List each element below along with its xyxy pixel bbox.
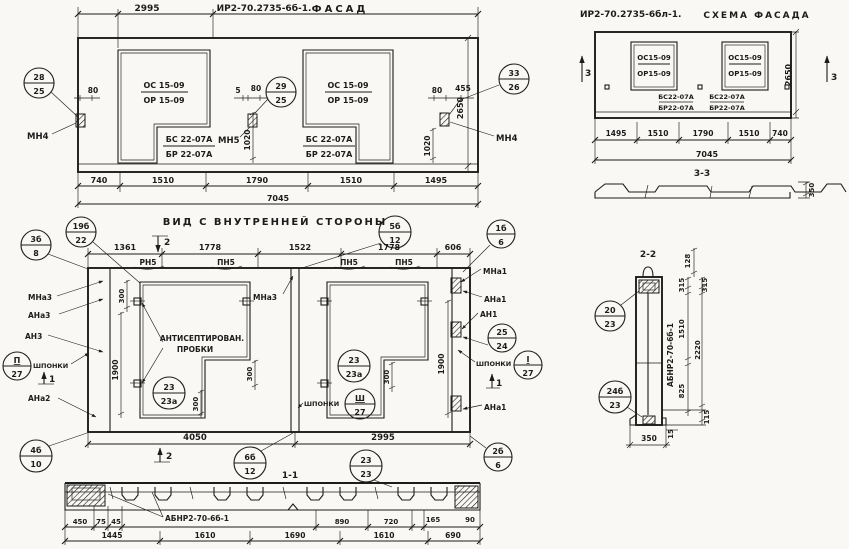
facade-view: 2995 ИР2-70.2735-6б-1. ФАСАД ОС 15-09 ОР… <box>24 3 529 208</box>
anchor-mark-mn5 <box>248 114 257 127</box>
schema-win2-line2: ОР15-09 <box>728 70 762 78</box>
dim-315-b: 315 <box>701 278 709 293</box>
svg-text:23: 23 <box>360 456 371 465</box>
dim-2650-schema: 2650 <box>784 63 793 86</box>
section33-title: 3-3 <box>694 169 710 179</box>
label-pn5-c: ПН5 <box>395 258 413 267</box>
svg-text:6: 6 <box>495 461 501 470</box>
dim-1790: 1790 <box>246 176 269 185</box>
svg-text:25: 25 <box>275 96 287 105</box>
balloon-29-25: 29 25 <box>255 77 296 113</box>
dim-300-top: 300 <box>118 289 126 304</box>
dim-1690: 1690 <box>285 531 306 540</box>
dim-300-a: 300 <box>246 367 254 382</box>
schema-sill2-line1: БС22-07А <box>709 93 745 101</box>
dim-350-sec22: 350 <box>641 434 657 443</box>
section11-label: АБНР2-70-6б-1 <box>165 514 229 523</box>
facade-win2-line1: ОС 15-09 <box>327 81 368 90</box>
svg-text:23: 23 <box>348 356 359 365</box>
svg-text:Ш: Ш <box>355 394 365 403</box>
dim-2220: 2220 <box>694 340 702 360</box>
svg-text:3б: 3б <box>30 234 42 244</box>
svg-text:27: 27 <box>11 370 22 379</box>
balloon-2b-6: 2б 6 <box>470 436 512 471</box>
schema-sill1-line2: БР22-07А <box>658 104 694 112</box>
label-mna1: МНа1 <box>483 267 507 276</box>
schema-subtitle: СХЕМА ФАСАДА <box>703 11 810 21</box>
dim-15: 15 <box>667 429 675 439</box>
svg-text:4б: 4б <box>30 445 42 455</box>
dim-690: 690 <box>445 531 461 540</box>
dim-80-left: 80 <box>88 86 98 95</box>
section-1-1: АБНР2-70-6б-1 450 75 45 890 720 165 90 1… <box>62 483 483 545</box>
svg-text:23а: 23а <box>161 397 178 406</box>
label-pn5-a: ПН5 <box>217 258 235 267</box>
dim-300-b: 300 <box>192 397 200 412</box>
dim-7045-schema: 7045 <box>696 150 719 159</box>
schema-dim-740: 740 <box>772 129 788 138</box>
section22-label: АБНР2-70-6б-1 <box>666 323 675 387</box>
section1-marker-left: 1 <box>49 375 55 385</box>
label-an1: АН1 <box>480 310 497 319</box>
svg-text:33: 33 <box>508 69 519 78</box>
svg-text:28: 28 <box>33 73 45 82</box>
svg-text:6: 6 <box>498 238 504 247</box>
label-ana1-bottom: АНа1 <box>484 403 506 412</box>
section2-marker-bottom: 2 <box>166 452 172 462</box>
note-antiseptic-2: ПРОБКИ <box>177 345 213 354</box>
section3-marker-right: 3 <box>831 73 837 83</box>
dim-165: 165 <box>426 516 441 524</box>
svg-text:26: 26 <box>508 83 520 92</box>
schema-win1-line1: ОС15-09 <box>637 54 671 62</box>
dim-740: 740 <box>91 176 108 185</box>
dim-1020-right: 1020 <box>423 136 432 157</box>
facade-subtitle: ФАСАД <box>312 4 369 15</box>
label-mna3-left: МНа3 <box>28 293 52 302</box>
svg-text:12: 12 <box>389 236 400 245</box>
facade-sill2-line1: БС 22-07А <box>306 135 353 144</box>
facade-win1-line2: ОР 15-09 <box>143 96 184 105</box>
dim-1610a: 1610 <box>195 531 216 540</box>
svg-text:29: 29 <box>275 82 287 91</box>
svg-text:I: I <box>527 355 530 364</box>
section11-title: 1-1 <box>282 471 298 481</box>
svg-text:25: 25 <box>496 328 508 337</box>
label-an3: АН3 <box>25 332 42 341</box>
facade-top-dim: 2995 <box>134 4 159 14</box>
svg-text:П: П <box>14 356 21 365</box>
svg-text:23: 23 <box>609 401 620 410</box>
dim-1510-sec: 1510 <box>678 319 686 339</box>
inner-title: ВИД С ВНУТРЕННЕЙ СТОРОНЫ <box>163 215 388 228</box>
dim-2995-inner: 2995 <box>371 433 395 443</box>
label-shponki-mid: ШПОНКИ <box>304 400 339 408</box>
section-2-2: 2-2 АБНР2-70-6б-1 128 315 315 1510 825 2… <box>595 248 711 448</box>
anchor-mark-mn4-right <box>440 113 449 126</box>
schema-dim-1790: 1790 <box>693 129 714 138</box>
dim-455: 455 <box>455 84 471 93</box>
balloon-III-27: Ш 27 <box>345 389 375 419</box>
dim-450: 450 <box>73 518 88 526</box>
dim-1510b: 1510 <box>340 176 363 185</box>
schema-win2-line1: ОС15-09 <box>728 54 762 62</box>
balloon-20-23: 20 23 <box>595 291 639 331</box>
facade-sill2-line2: БР 22-07А <box>306 150 353 159</box>
label-mn5: МН5 <box>218 136 240 146</box>
label-shponki-right: ШПОНКИ <box>476 360 511 368</box>
dim-4050: 4050 <box>183 433 207 443</box>
facade-win1-line1: ОС 15-09 <box>143 81 184 90</box>
section22-title: 2-2 <box>640 250 656 260</box>
svg-text:23а: 23а <box>346 370 363 379</box>
schema-dim-1510a: 1510 <box>648 129 669 138</box>
svg-text:1б: 1б <box>495 223 507 233</box>
dim-90: 90 <box>465 516 475 524</box>
balloon-23-23a-left: 23 23а <box>153 377 185 409</box>
schema-title: ИР2-70.2735-6бл-1. <box>580 9 681 20</box>
svg-text:24: 24 <box>496 342 508 351</box>
dim-80-right: 80 <box>432 86 442 95</box>
section3-marker-left: 3 <box>585 69 591 79</box>
svg-text:6б: 6б <box>244 452 256 462</box>
inner-view: ВИД С ВНУТРЕННЕЙ СТОРОНЫ 1361 1778 1522 … <box>3 215 542 487</box>
label-mn4-right: МН4 <box>496 134 518 144</box>
dim-1361: 1361 <box>114 243 137 252</box>
svg-text:23: 23 <box>163 383 174 392</box>
svg-text:22: 22 <box>75 236 86 245</box>
dim-825: 825 <box>678 384 686 399</box>
svg-text:20: 20 <box>604 306 616 315</box>
dim-720: 720 <box>384 518 399 526</box>
balloon-1b-6: 1б 6 <box>463 220 515 272</box>
section2-marker-top: 2 <box>164 238 170 248</box>
facade-win2-line2: ОР 15-09 <box>327 96 368 105</box>
dim-45: 45 <box>111 518 121 526</box>
schema-sill1-line1: БС22-07А <box>658 93 694 101</box>
label-rn5: РН5 <box>140 258 157 267</box>
dim-75: 75 <box>96 518 106 526</box>
svg-text:23: 23 <box>604 320 615 329</box>
dim-1900-left: 1900 <box>111 360 120 381</box>
svg-text:27: 27 <box>354 408 365 417</box>
blueprint-page: 2995 ИР2-70.2735-6б-1. ФАСАД ОС 15-09 ОР… <box>0 0 849 549</box>
schema-win1-line2: ОР15-09 <box>637 70 671 78</box>
balloon-II-27: П 27 <box>3 352 31 380</box>
svg-text:2б: 2б <box>492 446 504 456</box>
facade-sill1-line2: БР 22-07А <box>166 150 213 159</box>
label-ana3: АНа3 <box>28 311 50 320</box>
drawing-canvas: 2995 ИР2-70.2735-6б-1. ФАСАД ОС 15-09 ОР… <box>0 0 849 549</box>
balloon-4b-10: 4б 10 <box>20 433 87 472</box>
svg-text:27: 27 <box>522 369 533 378</box>
facade-title: ИР2-70.2735-6б-1. <box>217 3 312 14</box>
balloon-23-23: 23 23 <box>350 450 392 487</box>
svg-text:12: 12 <box>244 467 255 476</box>
facade-sill1-line1: БС 22-07А <box>166 135 213 144</box>
label-mn4-left: МН4 <box>27 132 49 142</box>
section-3-3: 3-3 350 <box>595 169 846 198</box>
note-antiseptic-1: АНТИСЕПТИРОВАН. <box>160 334 244 343</box>
label-mna3-mid: МНа3 <box>253 293 277 302</box>
dim-890: 890 <box>335 518 350 526</box>
balloon-23-23a-right: 23 23а <box>338 350 370 382</box>
svg-text:10: 10 <box>30 460 42 469</box>
schema-dim-1510b: 1510 <box>739 129 760 138</box>
svg-text:24б: 24б <box>607 386 624 396</box>
svg-text:19б: 19б <box>73 221 90 231</box>
svg-text:5б: 5б <box>389 221 401 231</box>
balloon-28-25: 28 25 <box>24 68 78 117</box>
dim-350-sec33: 350 <box>808 183 816 198</box>
dim-606: 606 <box>445 243 462 252</box>
label-shponki-left: ШПОНКИ <box>33 362 68 370</box>
svg-text:25: 25 <box>33 87 45 96</box>
anchor-mark-mn4-left <box>76 114 85 127</box>
dim-300-c: 300 <box>383 370 391 385</box>
balloon-I-27: I 27 <box>514 351 542 379</box>
schema-dim-1495: 1495 <box>606 129 627 138</box>
dim-80-mid: 80 <box>251 84 261 93</box>
svg-text:23: 23 <box>360 470 371 479</box>
dim-1510a: 1510 <box>152 176 175 185</box>
dim-1495: 1495 <box>425 176 448 185</box>
dim-115: 115 <box>703 410 711 425</box>
label-ana1-top: АНа1 <box>484 295 506 304</box>
label-pn5-b: ПН5 <box>340 258 358 267</box>
schema-sill2-line2: БР22-07А <box>709 104 745 112</box>
dim-1445: 1445 <box>102 531 123 540</box>
svg-text:8: 8 <box>33 249 39 258</box>
dim-1522: 1522 <box>289 243 311 252</box>
dim-7045-facade: 7045 <box>267 194 290 203</box>
dim-315-a: 315 <box>678 278 686 293</box>
schema-view: ИР2-70.2735-6бл-1. СХЕМА ФАСАДА ОС15-09 … <box>580 9 837 164</box>
section1-marker-right: 1 <box>496 379 502 389</box>
dim-5: 5 <box>235 86 240 95</box>
dim-1778a: 1778 <box>199 243 222 252</box>
label-ana2: АНа2 <box>28 394 50 403</box>
dim-1610b: 1610 <box>374 531 395 540</box>
dim-128: 128 <box>684 254 692 269</box>
dim-1900-right: 1900 <box>437 354 446 375</box>
balloon-25-24: 25 24 <box>463 324 516 352</box>
